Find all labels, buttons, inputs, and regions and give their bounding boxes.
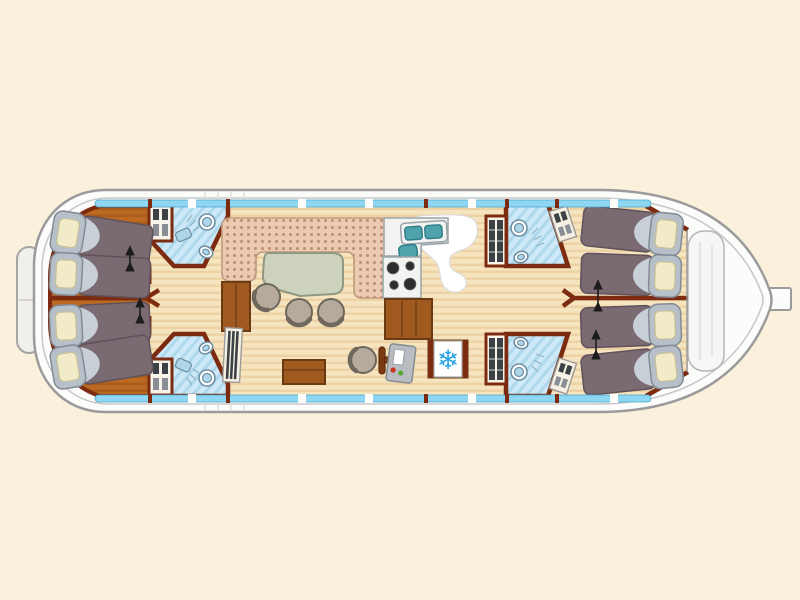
double-sink bbox=[400, 220, 447, 244]
stern-deck bbox=[688, 231, 724, 371]
snowflake-icon: ❄ bbox=[437, 345, 460, 376]
towel-ladder bbox=[223, 328, 243, 383]
canvas-background: ❄ bbox=[0, 0, 800, 600]
stool bbox=[286, 299, 312, 325]
bed bbox=[580, 252, 681, 297]
stool bbox=[318, 299, 344, 325]
toilet bbox=[199, 214, 215, 230]
galley-cabinet bbox=[385, 299, 432, 339]
wardrobe-aft-starboard bbox=[486, 334, 506, 384]
toilet bbox=[511, 220, 527, 236]
boat-floor-plan: ❄ bbox=[0, 0, 800, 600]
wardrobe-aft-port bbox=[486, 216, 506, 266]
stove bbox=[383, 257, 421, 298]
control-panel bbox=[386, 344, 416, 384]
helm-chair bbox=[350, 347, 376, 373]
toilet bbox=[199, 370, 215, 386]
storage-chest bbox=[283, 360, 325, 384]
bed bbox=[49, 252, 151, 299]
toilet bbox=[511, 364, 527, 380]
fridge-freezer: ❄ bbox=[428, 340, 468, 378]
